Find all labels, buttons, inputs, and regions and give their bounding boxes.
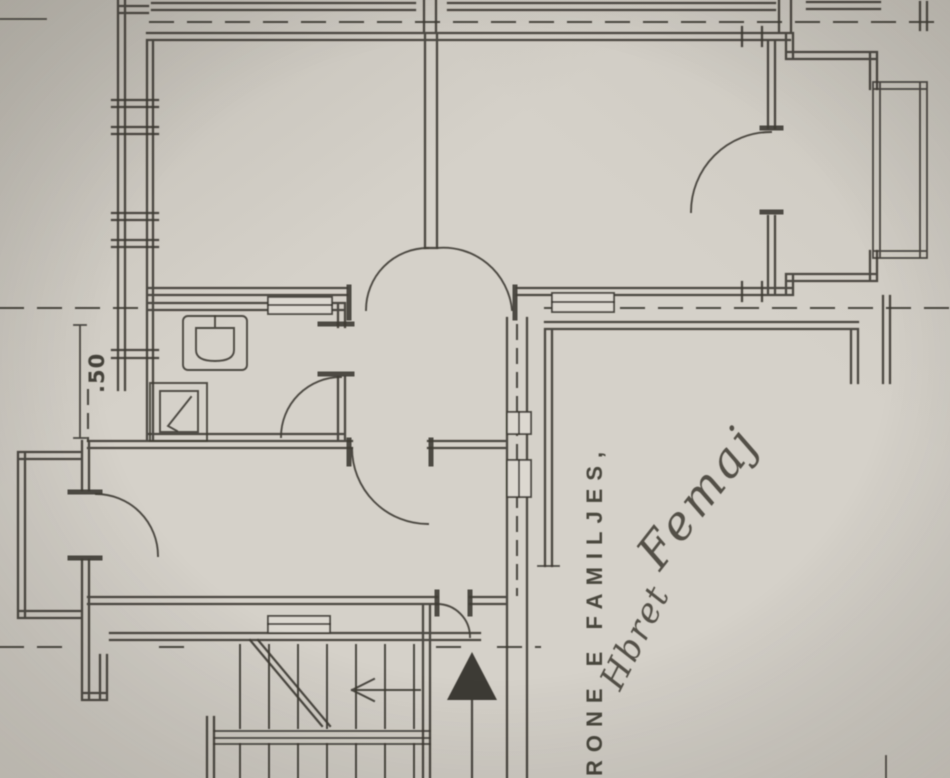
- floor-plan-drawing: .50 RONE E FAMILJES, Hbret Femaj: [0, 0, 950, 778]
- vignette-overlay: [0, 0, 950, 778]
- scanned-floorplan-page: .50 RONE E FAMILJES, Hbret Femaj: [0, 0, 950, 778]
